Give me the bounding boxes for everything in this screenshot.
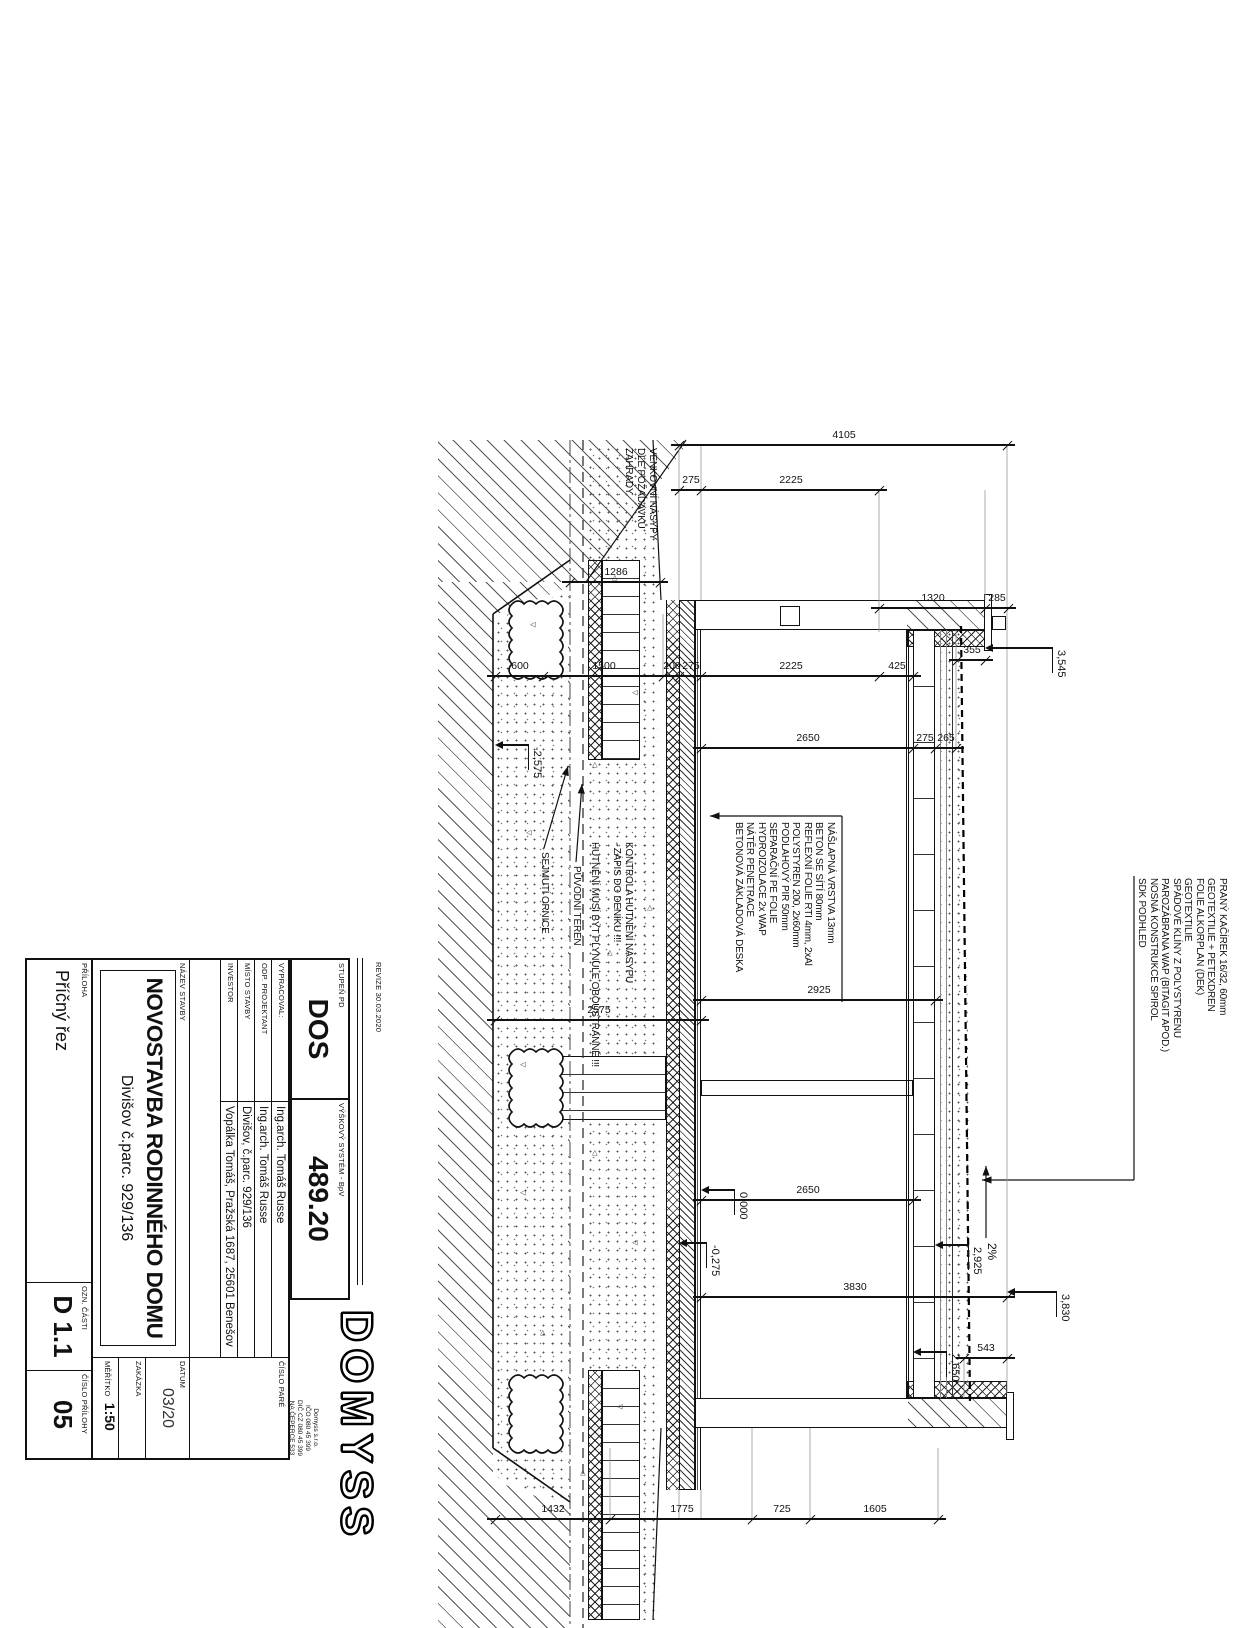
compaction-mark: ◁ <box>606 950 613 955</box>
dim-label: 2225 <box>763 474 819 486</box>
compaction-mark: ◁ <box>646 905 653 910</box>
priloha-cell: PŘÍLOHA Příčný řez <box>27 960 93 1282</box>
meritko-label: MĚŘÍTKO <box>101 1358 114 1400</box>
sejmuti-leader <box>544 766 568 848</box>
text-line: ZAHRADY <box>622 448 634 540</box>
text-line: HUTNĚNÍ MUSÍ BÝT PLYNULE OBOUSTRANNÉ !!! <box>588 842 600 1067</box>
cislo-prilohy-value: 05 <box>47 1371 78 1458</box>
dim-line <box>693 1199 921 1200</box>
text-line: Domyss s.r.o. <box>311 1338 319 1518</box>
dim-line <box>487 1019 709 1020</box>
level-bar <box>1056 1291 1057 1317</box>
title-row: INVESTORVopálka Tomáš, Pražská 1687, 256… <box>220 960 237 1357</box>
level-bar <box>734 1189 735 1215</box>
break-cloud <box>509 1049 563 1127</box>
ozn-value: D 1.1 <box>47 1283 78 1370</box>
stupen-label: STUPEŇ PD <box>335 960 348 1098</box>
text-line: HYDROIZOLACE 2x WAP <box>756 822 768 972</box>
dim-label: 200 <box>644 660 700 672</box>
note-venkovni-nasypy: VENKOVNÍ NÁSYPYDLE POŽADAVKŮZAHRADY <box>622 448 658 540</box>
terrain-line-right <box>653 1428 661 1620</box>
level-label: 3,545 <box>1055 650 1067 678</box>
level-stem <box>687 1242 707 1243</box>
dim-line <box>693 999 943 1000</box>
dim-label: 2650 <box>780 732 836 744</box>
screenshot-canvas: PRANÝ KAČÍREK 16/32, 60mmGEOTEXTILIE + P… <box>0 0 1238 1628</box>
text-line: REFLEXNÍ FOLIE RTI 4mm, 2xAl <box>802 822 814 972</box>
level-label: 2,650 <box>949 1354 961 1382</box>
floor-layers-list: NÁŠLAPNÁ VRSTVA 13mmBETON SE SÍTÍ 80mmRE… <box>733 822 837 972</box>
cislo-pare-cell: ČÍSLO PARÉ <box>190 1357 288 1458</box>
cislo-pare-label: ČÍSLO PARÉ <box>275 1358 288 1458</box>
note-sejmuti-ornice: SEJMUTÍ ORNICE <box>538 852 550 934</box>
stupen-cell: STUPEŇ PD DOS <box>290 958 350 1100</box>
ozn-cell: OZN. ČÁSTI D 1.1 <box>27 1282 93 1370</box>
level-stem <box>921 1351 947 1352</box>
dim-line <box>671 489 887 490</box>
dim-label: 425 <box>869 660 925 672</box>
text-line: BETON SE SÍTÍ 80mm <box>813 822 825 972</box>
title-row-value: Ing.arch. Tomáš Russe <box>272 1102 288 1357</box>
dim-label: 1775 <box>654 1503 710 1515</box>
text-line: NÁŠLAPNÁ VRSTVA 13mm <box>825 822 837 972</box>
dim-line <box>871 607 1016 608</box>
level-stem <box>503 744 529 745</box>
roof-layers-list: PRANÝ KAČÍREK 16/32, 60mmGEOTEXTILIE + P… <box>1136 878 1228 1052</box>
dim-label: 275 <box>663 474 719 486</box>
text-line: - ZÁPIS DO DENÍKU !!! <box>610 842 622 983</box>
dim-label: 275 <box>897 732 953 744</box>
level-stem <box>993 647 1053 648</box>
dim-label: 2925 <box>791 984 847 996</box>
cislo-prilohy-label: ČÍSLO PŘÍLOHY <box>78 1371 91 1458</box>
datum-cell: DATUM 03/20 <box>146 1357 190 1458</box>
compaction-mark: ▽ <box>631 690 638 695</box>
level-arrowhead <box>985 644 993 652</box>
vyskovy-cell: VÝŠKOVÝ SYSTÉM - BpV 489.20 <box>290 1100 350 1300</box>
break-cloud <box>509 1375 563 1453</box>
title-row-label: INVESTOR <box>221 960 237 1102</box>
vyskovy-value: 489.20 <box>302 1100 334 1298</box>
vyskovy-label: VÝŠKOVÝ SYSTÉM - BpV <box>335 1100 348 1298</box>
pit-slope-right <box>493 1448 570 1502</box>
title-row: MÍSTO STAVBYDivišov, č.parc. 929/136 <box>237 960 254 1357</box>
level-stem <box>1015 1291 1057 1292</box>
priloha-value: Příčný řez <box>45 960 78 1282</box>
meritko-value: 1:50 <box>102 1403 118 1431</box>
level-bar <box>1052 647 1053 673</box>
zakazka-cell: ZAKÁZKA <box>119 1357 146 1458</box>
note-kontrola-hutneni: KONTROLA HUTNĚNÍ NÁSYPU- ZÁPIS DO DENÍKU… <box>610 842 634 983</box>
text-line: BETONOVÁ ZÁKLADOVÁ DESKA <box>733 822 745 972</box>
company-logo: DOMYSS <box>331 1310 381 1543</box>
text-line: GEOTEXTILIE <box>1182 878 1194 1052</box>
level-label: -0,275 <box>709 1245 721 1276</box>
dim-line <box>562 581 668 582</box>
level-bar <box>528 744 529 770</box>
dim-line <box>693 747 964 748</box>
nazev-cell: NÁZEV STAVBY NOVOSTAVBA RODINNÉHO DOMU D… <box>93 960 190 1357</box>
nazev-box: NOVOSTAVBA RODINNÉHO DOMU Divišov č.parc… <box>100 970 176 1346</box>
title-row-label: VYPRACOVAL: <box>272 960 288 1102</box>
text-line: DLE POŽADAVKŮ <box>634 448 646 540</box>
dim-line <box>693 1296 1015 1297</box>
text-line: SPÁDOVÉ KLÍNY Z POLYSTYRENU <box>1171 878 1183 1052</box>
dim-label: 2225 <box>763 660 819 672</box>
note-puvodni-teren: PŮVODNÍ TERÉN <box>570 866 582 945</box>
compaction-mark: ▽ <box>519 1190 526 1195</box>
title-row: VYPRACOVAL:Ing.arch. Tomáš Russe <box>271 960 288 1357</box>
zakazka-label: ZAKÁZKA <box>132 1358 145 1458</box>
compaction-mark: ▽ <box>616 1404 623 1409</box>
level-stem <box>943 1244 969 1245</box>
dim-label: 3830 <box>827 1281 883 1293</box>
dim-label: 725 <box>754 1503 810 1515</box>
dim-label: 1320 <box>905 592 961 604</box>
text-line: FOLIE ALKORPLAN (DEK) <box>1194 878 1206 1052</box>
project-site: Divišov č.parc. 929/136 <box>117 971 135 1345</box>
title-row-value: Divišov, č.parc. 929/136 <box>238 1102 254 1357</box>
dim-line <box>487 1518 946 1519</box>
title-row-value: Vopálka Tomáš, Pražská 1687, 25601 Beneš… <box>221 1102 237 1357</box>
level-arrowhead <box>679 1239 687 1247</box>
dim-label: 543 <box>959 1342 1015 1354</box>
title-row: ODP. PROJEKTANTIng.arch. Tomáš Russe <box>254 960 271 1357</box>
level-bar <box>968 1244 969 1270</box>
priloha-label: PŘÍLOHA <box>78 960 91 1282</box>
title-rule <box>357 958 363 1285</box>
text-line: PODLAHOVÝ PIR 50mm <box>779 822 791 972</box>
compaction-mark: ▽ <box>631 1240 638 1245</box>
cislo-prilohy-cell: ČÍSLO PŘÍLOHY 05 <box>27 1370 93 1458</box>
text-line: NÁTĚR PENETRACE <box>744 822 756 972</box>
level-arrowhead <box>935 1241 943 1249</box>
dim-label: 4105 <box>816 429 872 441</box>
title-rows: VYPRACOVAL:Ing.arch. Tomáš RusseODP. PRO… <box>220 960 288 1357</box>
dim-line <box>671 444 1015 445</box>
level-bar <box>946 1351 947 1377</box>
text-line: PRANÝ KAČÍREK 16/32, 60mm <box>1217 878 1229 1052</box>
level-arrowhead <box>913 1348 921 1356</box>
compaction-mark: ▽ <box>519 1062 526 1067</box>
dim-label: 1500 <box>576 660 632 672</box>
level-label: 2,925 <box>971 1247 983 1275</box>
stupen-value: DOS <box>302 960 334 1098</box>
level-label: 3,830 <box>1059 1294 1071 1322</box>
project-name: NOVOSTAVBA RODINNÉHO DOMU <box>141 971 167 1345</box>
text-line: KONTROLA HUTNĚNÍ NÁSYPU <box>622 842 634 983</box>
level-label: -2,575 <box>531 747 543 778</box>
datum-value: 03/20 <box>158 1358 176 1458</box>
title-block: REVIZE 30.03.2020 STUPEŇ PD DOS VÝŠKOVÝ … <box>18 958 393 1558</box>
compaction-mark: ◁ <box>591 762 598 767</box>
revision-note: REVIZE 30.03.2020 <box>374 962 383 1032</box>
title-grid: VYPRACOVAL:Ing.arch. Tomáš RusseODP. PRO… <box>25 958 290 1460</box>
nazev-label: NÁZEV STAVBY <box>176 960 189 1357</box>
puvodni-leader <box>576 784 582 862</box>
text-line: IČO 080 45 399 <box>303 1338 311 1518</box>
level-label: 0,000 <box>737 1192 749 1220</box>
slope-2pct-label: 2% <box>986 1243 998 1260</box>
datum-label: DATUM <box>176 1358 189 1458</box>
title-row-label: MÍSTO STAVBY <box>238 960 254 1102</box>
drawing-sheet: PRANÝ KAČÍREK 16/32, 60mmGEOTEXTILIE + P… <box>0 0 1238 1628</box>
dim-label: 600 <box>492 660 548 672</box>
text-line: SEPARAČNÍ PE FOLIE <box>767 822 779 972</box>
dim-line <box>487 675 921 676</box>
dim-label: 285 <box>970 592 1026 604</box>
compaction-mark: ◁ <box>579 1470 586 1475</box>
text-line: DIČ CZ 080 45 399 <box>295 1338 303 1518</box>
level-arrowhead <box>1007 1288 1015 1296</box>
text-line: SDK PODHLED <box>1136 878 1148 1052</box>
note-hutneni-oboustranne: HUTNĚNÍ MUSÍ BÝT PLYNULE OBOUSTRANNÉ !!! <box>588 842 600 1067</box>
level-arrowhead <box>495 741 503 749</box>
text-line: VENKOVNÍ NÁSYPY <box>646 448 658 540</box>
text-line: POLYSTYREN 200, 2x60mm <box>790 822 802 972</box>
dim-label: 2575 <box>571 1004 627 1016</box>
text-line: PAROZÁBRANA WAP (BITAGIT APOD.) <box>1159 878 1171 1052</box>
dim-label: 1432 <box>526 1503 582 1515</box>
level-stem <box>709 1189 735 1190</box>
meritko-cell: MĚŘÍTKO 1:50 <box>93 1357 119 1458</box>
compaction-mark: ◁ <box>591 1150 598 1155</box>
level-bar <box>706 1242 707 1268</box>
dim-label: 1605 <box>847 1503 903 1515</box>
title-row-label: ODP. PROJEKTANT <box>255 960 271 1102</box>
ozn-label: OZN. ČÁSTI <box>78 1283 91 1370</box>
dim-label: 2650 <box>780 1184 836 1196</box>
level-arrowhead <box>701 1186 709 1194</box>
compaction-mark: ▽ <box>529 622 536 627</box>
text-line: GEOTEXTILIE + PETEXDREN <box>1205 878 1217 1052</box>
compaction-mark: ▽ <box>525 830 532 835</box>
text-line: NOSNÁ KONSTRUKCE SPIROL <box>1148 878 1160 1052</box>
title-row-value: Ing.arch. Tomáš Russe <box>255 1102 271 1357</box>
compaction-mark: ◁ <box>539 1330 546 1335</box>
compaction-mark: ◁ <box>611 575 618 580</box>
